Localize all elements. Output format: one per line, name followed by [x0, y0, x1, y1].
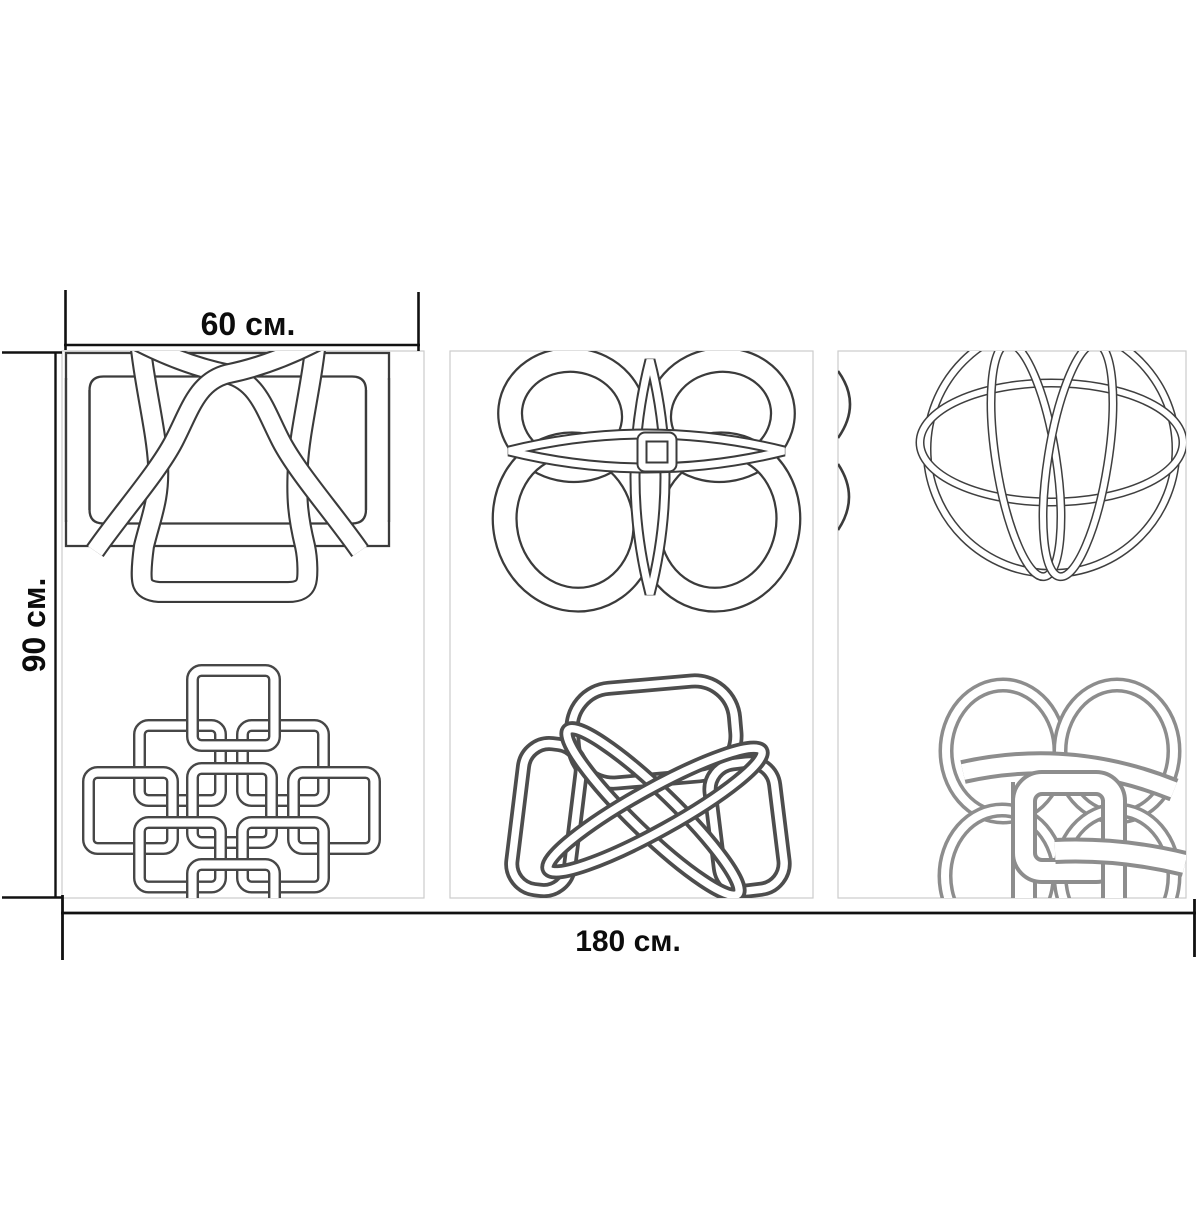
svg-text:60 см.: 60 см.	[201, 306, 296, 342]
svg-text:180 см.: 180 см.	[575, 925, 681, 958]
svg-text:90 см.: 90 см.	[16, 578, 52, 673]
